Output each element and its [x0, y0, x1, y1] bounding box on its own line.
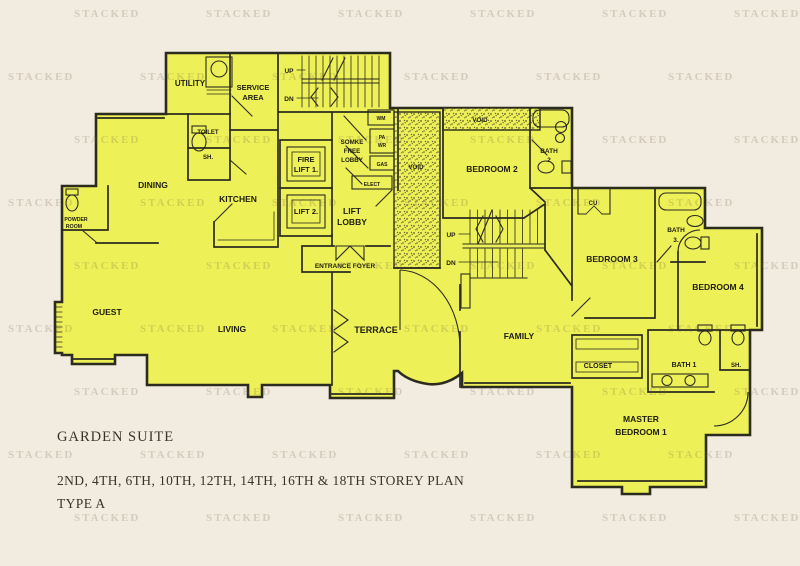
storey-plan-line: 2ND, 4TH, 6TH, 10TH, 12TH, 14TH, 16TH & …	[57, 473, 464, 488]
room-label-terrace: TERRACE	[354, 325, 398, 335]
room-label-utility: UTILITY	[175, 79, 206, 88]
room-label-bedroom2: BEDROOM 2	[466, 164, 518, 174]
riser-label-wm: WM	[377, 116, 386, 122]
room-label-bath2-2: 2	[547, 157, 551, 164]
floor-plan-image: UTILITY SERVICE AREA UP DN TOILET SH. DI…	[0, 0, 800, 566]
stairs2-dn-label: DN	[446, 260, 456, 267]
room-label-master-2: BEDROOM 1	[615, 427, 667, 437]
room-label-lift-lobby-2: LOBBY	[337, 217, 367, 227]
footer-caption: GARDEN SUITE 2ND, 4TH, 6TH, 10TH, 12TH, …	[57, 429, 464, 511]
room-label-master-1: MASTER	[623, 414, 659, 424]
room-label-bath1: BATH 1	[672, 362, 697, 369]
type-line: TYPE A	[57, 496, 106, 511]
room-label-powder-1: POWDER	[64, 217, 88, 223]
riser-label-pa: PA	[379, 135, 386, 141]
room-label-toilet: TOILET	[197, 130, 219, 136]
riser-label-elect: ELECT	[364, 182, 380, 188]
room-label-bath2-1: BATH	[540, 148, 558, 155]
room-label-family: FAMILY	[504, 331, 535, 341]
room-label-smoke-2: FREE	[344, 148, 361, 155]
room-label-bath3-2: 3.	[673, 237, 679, 244]
room-label-lift2: LIFT 2.	[294, 207, 318, 216]
room-label-living: LIVING	[218, 324, 247, 334]
riser-label-wr: WR	[378, 143, 387, 149]
plan-title: GARDEN SUITE	[57, 429, 174, 445]
floor-plan-svg: UTILITY SERVICE AREA UP DN TOILET SH. DI…	[0, 0, 800, 566]
room-label-guest: GUEST	[92, 307, 122, 317]
room-label-fire-lift-2: LIFT 1.	[294, 165, 318, 174]
room-label-kitchen: KITCHEN	[219, 194, 257, 204]
room-label-powder-2: ROOM	[66, 224, 82, 230]
stairs-up-label: UP	[284, 68, 294, 75]
room-label-lift-lobby-1: LIFT	[343, 206, 362, 216]
room-label-cu: CU	[589, 201, 598, 207]
void-label-strip: VOID	[472, 117, 488, 124]
room-label-bedroom3: BEDROOM 3	[586, 254, 638, 264]
room-label-smoke-1: SOMKE	[341, 139, 364, 146]
room-label-smoke-3: LOBBY	[341, 157, 364, 164]
riser-label-gas: GAS	[377, 162, 389, 168]
room-label-fire-lift-1: FIRE	[297, 155, 314, 164]
room-label-bedroom4: BEDROOM 4	[692, 282, 744, 292]
room-label-foyer: ENTRANCE FOYER	[315, 263, 376, 270]
stairs-dn-label: DN	[284, 96, 294, 103]
room-label-toilet-sh: SH.	[203, 155, 213, 161]
void-label-main: VOID	[408, 164, 424, 171]
stairs2-up-label: UP	[446, 232, 456, 239]
room-label-service-area-1: SERVICE	[237, 83, 270, 92]
room-label-closet: CLOSET	[584, 363, 613, 370]
room-label-sh-master: SH.	[731, 363, 741, 369]
room-label-dining: DINING	[138, 180, 168, 190]
room-label-bath3-1: BATH	[667, 227, 685, 234]
room-label-service-area-2: AREA	[242, 93, 264, 102]
